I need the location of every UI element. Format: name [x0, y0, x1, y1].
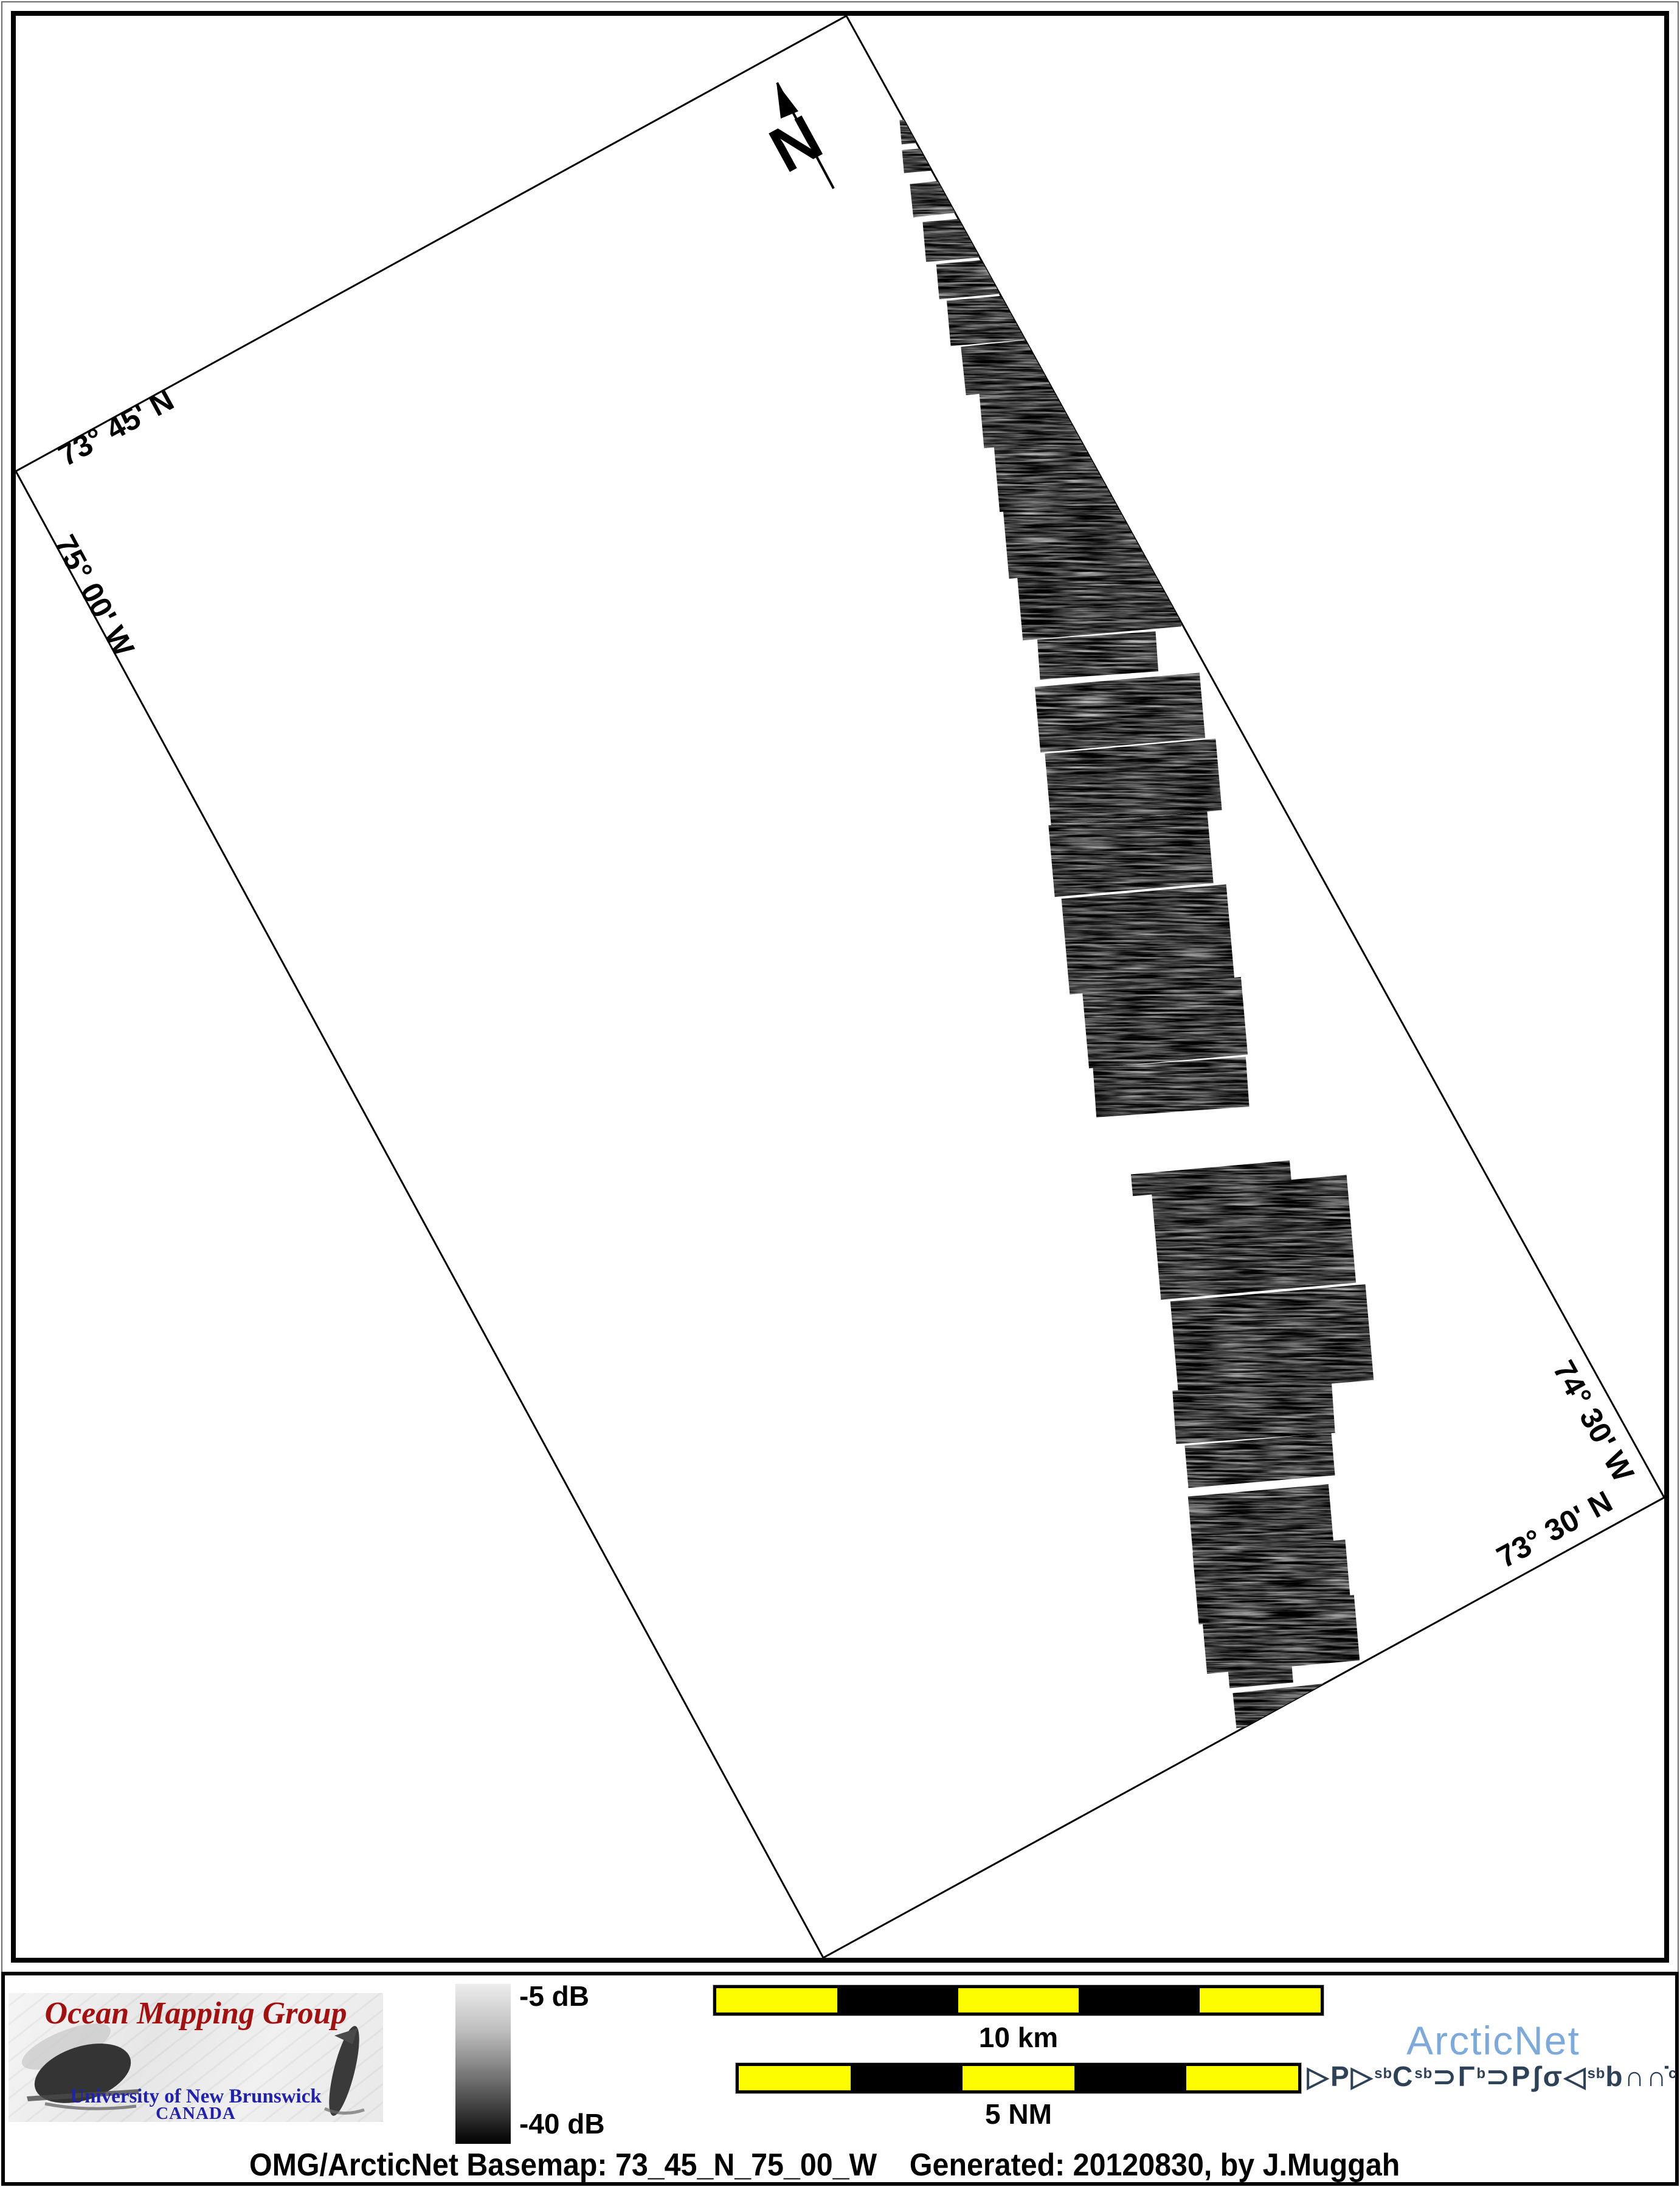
scalebar-segment	[837, 1988, 958, 2013]
scalebar-segment	[1079, 1988, 1200, 2013]
scalebar-segment	[739, 2066, 851, 2090]
omg-logo: Ocean Mapping Group University of New Br…	[9, 1993, 383, 2122]
backscatter-swath	[899, 117, 1374, 1729]
map-frame-outline	[16, 16, 1664, 1958]
scalebar-nm-label: 5 NM	[897, 2098, 1140, 2130]
scalebar-segment	[851, 2066, 963, 2090]
scalebar-segment	[1186, 2066, 1298, 2090]
scalebar-km-label: 10 km	[897, 2021, 1140, 2054]
frame-label-right-longitude: 74° 30' W	[1546, 1355, 1640, 1488]
north-arrow: N	[759, 83, 834, 188]
omg-subtitle-canada: CANADA	[9, 2104, 383, 2122]
frame-label-top-latitude: 73° 45' N	[52, 382, 179, 473]
colorbar-max-label: -5 dB	[519, 1980, 589, 2013]
omg-title: Ocean Mapping Group	[9, 1995, 383, 2031]
arcticnet-inuktitut-name: ▷P▷sbCsb⊃Γb ⊃Pʃσ◁sbb∩∩̇c	[1306, 2060, 1678, 2093]
scalebar-segment	[1074, 2066, 1186, 2090]
arcticnet-logo-name: ArcticNet	[1338, 2017, 1649, 2064]
north-arrow-label: N	[759, 102, 834, 186]
basemap-page: N 73° 45' N 75° 00' W 74° 30' W 73° 30' …	[0, 0, 1680, 2187]
basemap-caption: OMG/ArcticNet Basemap: 73_45_N_75_00_W G…	[249, 2147, 1400, 2183]
frame-label-left-longitude: 75° 00' W	[47, 530, 141, 663]
scalebar-segment	[716, 1988, 837, 2013]
scalebar-segment	[1200, 1988, 1321, 2013]
backscatter-colorbar	[455, 1984, 511, 2144]
colorbar-min-label: -40 dB	[519, 2107, 605, 2140]
scalebar-km	[713, 1985, 1324, 2016]
scalebar-segment	[963, 2066, 1074, 2090]
scalebar-nm	[736, 2063, 1301, 2093]
scalebar-segment	[958, 1988, 1079, 2013]
frame-label-bottom-latitude: 73° 30' N	[1491, 1484, 1617, 1575]
map-canvas: N 73° 45' N 75° 00' W 74° 30' W 73° 30' …	[0, 0, 1680, 2187]
